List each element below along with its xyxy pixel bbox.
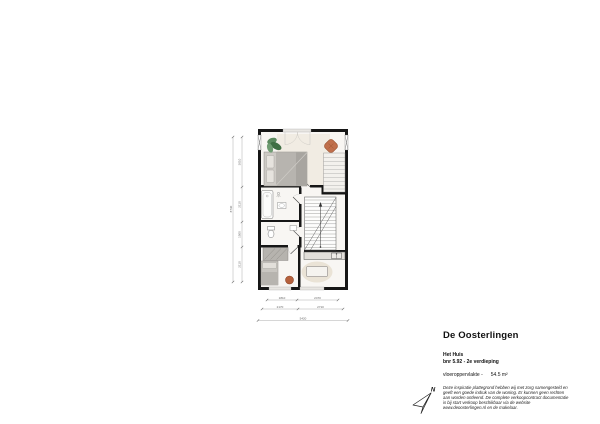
stool — [286, 276, 294, 284]
brochure-page: 8730 3010 2110 1500 2110 1810 2470 2170 … — [0, 0, 600, 424]
kitchen-counter — [304, 252, 345, 260]
table — [307, 267, 328, 277]
project-title: De Oosterlingen — [443, 330, 569, 341]
floor-area-value: 54.5 m² — [491, 372, 508, 378]
floor-area-label: vloeroppervlakte - — [443, 372, 483, 378]
floor-area: vloeroppervlakte -54.5 m² — [443, 372, 569, 378]
pillow — [267, 156, 275, 169]
window-bottom-right — [300, 287, 324, 290]
dim-left-total: 8730 — [229, 205, 233, 212]
north-arrow-icon: N — [413, 388, 436, 414]
pillow — [267, 170, 275, 183]
dim-left-seg: 3010 — [238, 158, 242, 165]
wardrobe-shelves — [324, 153, 346, 192]
washbasin — [278, 203, 287, 209]
dim-left-seg: 2110 — [238, 261, 242, 268]
window-right-icon — [345, 135, 348, 150]
unit-number: bnr 5.92 - 2e verdieping — [443, 359, 569, 366]
toilet-basin — [290, 226, 297, 231]
dim-bottom-mid: 2710 — [317, 305, 324, 309]
dim-left-seg: 2110 — [238, 201, 242, 208]
north-label: N — [431, 388, 436, 394]
toilet — [268, 227, 275, 238]
disclaimer-text: Deze inspiratie plattegrond hebben wij m… — [443, 385, 569, 410]
dim-bottom-inner: 1810 — [279, 296, 286, 300]
bed — [264, 152, 307, 186]
window-bottom-left — [269, 287, 291, 290]
daybed — [261, 261, 278, 285]
closet — [263, 248, 288, 261]
bathtub — [262, 191, 274, 219]
staircase — [305, 197, 337, 250]
dim-left-seg: 1500 — [238, 231, 242, 238]
balcony-door-opening — [283, 129, 311, 132]
info-block: De Oosterlingen Het Huis bnr 5.92 - 2e v… — [443, 330, 569, 410]
dim-bottom-inner: 2470 — [314, 296, 321, 300]
dim-bottom-total: 5420 — [300, 316, 307, 320]
dim-bottom-mid: 2170 — [277, 305, 284, 309]
window-left-icon — [258, 135, 261, 150]
